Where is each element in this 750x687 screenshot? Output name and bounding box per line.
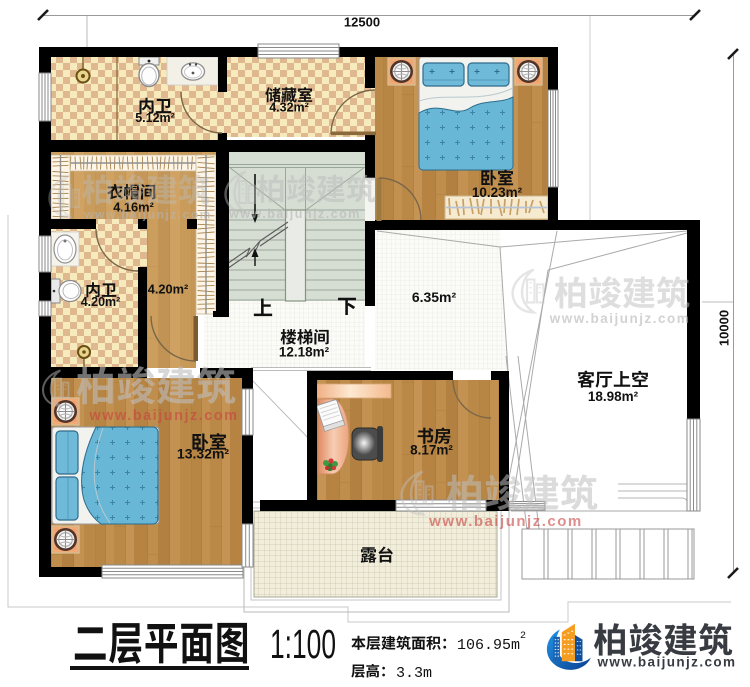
svg-text:18.98m²: 18.98m²	[588, 389, 639, 404]
svg-text:10000: 10000	[717, 310, 732, 346]
svg-text:www.baijunjz.com: www.baijunjz.com	[88, 408, 238, 424]
svg-text:4.20m²: 4.20m²	[148, 282, 189, 297]
svg-text:6.35m²: 6.35m²	[412, 289, 457, 305]
svg-text:www.baijunjz.com: www.baijunjz.com	[83, 207, 212, 221]
svg-text:www.baijunjz.com: www.baijunjz.com	[549, 311, 691, 326]
svg-text:www.baijunjz.com: www.baijunjz.com	[428, 513, 582, 530]
svg-text:2: 2	[520, 631, 526, 642]
svg-text:5.12m²: 5.12m²	[135, 111, 175, 125]
svg-text:12500: 12500	[344, 15, 380, 30]
svg-text:106.95m: 106.95m	[457, 637, 520, 654]
svg-text:1:100: 1:100	[270, 621, 336, 667]
svg-text:3.3m: 3.3m	[396, 665, 432, 682]
svg-text:4.20m²: 4.20m²	[81, 295, 121, 309]
svg-text:12.18m²: 12.18m²	[279, 344, 330, 359]
svg-text:4.32m²: 4.32m²	[269, 101, 309, 115]
svg-text:10.23m²: 10.23m²	[472, 185, 523, 200]
svg-text:13.32m²: 13.32m²	[177, 446, 229, 462]
svg-text:8.17m²: 8.17m²	[410, 442, 453, 457]
svg-text:www.baijunjz.com: www.baijunjz.com	[228, 207, 361, 221]
svg-text:www.baijunjz.com: www.baijunjz.com	[597, 654, 737, 669]
